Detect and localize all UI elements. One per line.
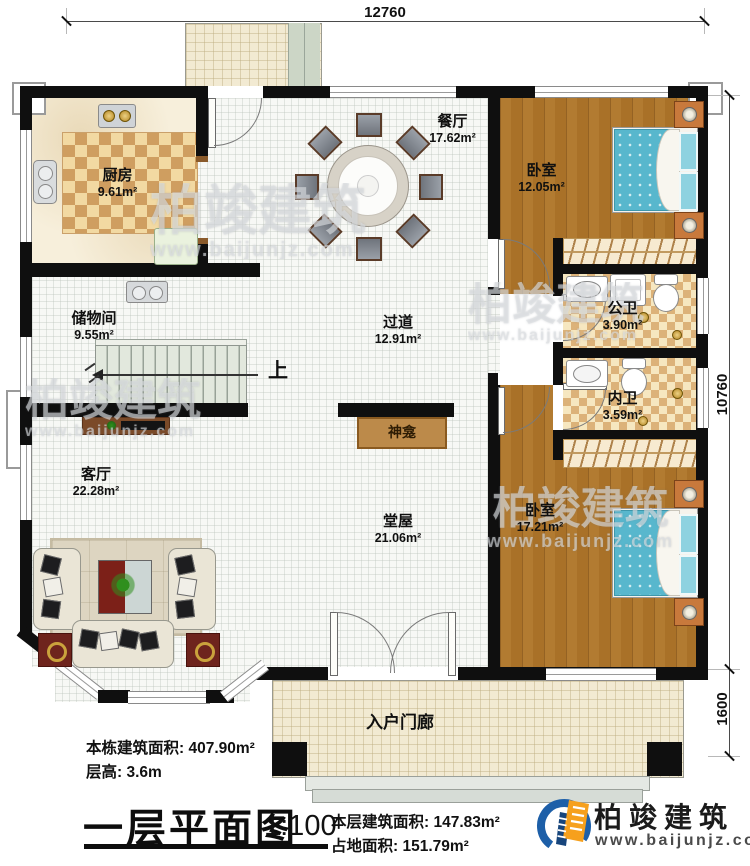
- room-label-storage: 储物间 9.55m²: [48, 310, 140, 343]
- storage-counter-sink: [126, 281, 168, 303]
- sofa-cushion: [99, 631, 119, 651]
- floor-area-note: 本层建筑面积: 147.83m²: [331, 810, 500, 832]
- closet-bottom: [563, 439, 698, 468]
- sofa-cushion: [41, 599, 61, 619]
- kitchen-door-jamb: [196, 156, 208, 162]
- room-area: 9.61m²: [75, 185, 160, 200]
- top-porch-step: [288, 23, 304, 87]
- floor-height-note: 层高: 3.6m: [86, 760, 162, 782]
- dim-ext: [708, 95, 740, 96]
- sofa-cushion: [43, 577, 64, 598]
- brand-name: 柏竣建筑: [594, 796, 734, 836]
- top-porch-step: [304, 23, 320, 87]
- kitchen-wall-bottom: [20, 263, 260, 277]
- sink-bowl: [149, 286, 163, 300]
- stairs-direction-line: [100, 374, 258, 376]
- room-area: 12.05m²: [499, 180, 584, 195]
- living-left-window: [20, 445, 32, 520]
- bed-top-pillow: [679, 132, 698, 171]
- room-area: 3.59m²: [580, 408, 665, 423]
- lamp: [682, 605, 697, 620]
- room-label-living: 客厅 22.28m²: [52, 466, 140, 499]
- room-area: 9.55m²: [48, 328, 140, 343]
- private-bath-right-window: [697, 368, 709, 428]
- dim-line-top: [66, 21, 704, 22]
- nightstand: [674, 598, 704, 626]
- bed-top-pillow: [679, 172, 698, 211]
- bedroom-bottom-door-gap: [498, 373, 553, 385]
- sink-basin: [573, 365, 601, 383]
- dining-top-window: [330, 86, 456, 98]
- watermark-site: www.baijunjz.com: [25, 424, 255, 441]
- top-porch-door-gap: [208, 86, 263, 98]
- coffee-table-plant: [108, 570, 138, 600]
- room-name: 卧室: [499, 162, 584, 180]
- bed-top-blanket: [656, 129, 680, 211]
- burner: [103, 110, 115, 122]
- sofa-cushion: [139, 631, 160, 652]
- room-name: 餐厅: [410, 113, 495, 131]
- lamp: [682, 218, 697, 233]
- shrine-label: 神龛: [388, 424, 416, 440]
- gold-ornament: [47, 642, 67, 662]
- porch-pillar-right: [647, 742, 682, 776]
- sofa-cushion: [177, 577, 198, 598]
- room-area: 17.62m²: [410, 131, 495, 146]
- shower-head: [672, 388, 683, 399]
- watermark-site: www.baijunjz.com: [150, 240, 620, 259]
- gold-ornament: [195, 642, 215, 662]
- room-label-entry-porch: 入户门廊: [330, 713, 470, 733]
- shrine-table: 神龛: [357, 417, 447, 449]
- dim-porch-value: 1600: [714, 673, 731, 745]
- kitchen-sink: [33, 160, 57, 204]
- room-label-main-hall: 堂屋 21.06m²: [354, 513, 442, 546]
- dim-ext: [708, 756, 740, 757]
- room-area: 22.28m²: [52, 484, 140, 499]
- brand-logo-icon: [536, 790, 594, 865]
- dim-right-value: 10760: [714, 347, 731, 442]
- closet-rod: [564, 452, 697, 454]
- room-name: 内卫: [580, 390, 665, 408]
- watermark-site: www.baijunjz.com: [428, 532, 733, 551]
- bay-wall-corner-left: [98, 690, 130, 703]
- room-area: 12.91m²: [354, 332, 442, 347]
- closet-bath-wall: [553, 264, 696, 274]
- room-label-private-bath: 内卫 3.59m²: [580, 390, 665, 423]
- brand-block: 柏竣建筑 www.baijunjz.com: [536, 790, 750, 862]
- bay-window-front: [128, 691, 210, 704]
- room-name: 公卫: [580, 300, 665, 318]
- watermark-text: 柏竣建筑: [25, 378, 201, 425]
- room-area: 3.90m²: [580, 318, 665, 333]
- side-table-left: [38, 633, 72, 667]
- bedroom-bottom-window: [546, 668, 656, 681]
- room-name: 储物间: [48, 310, 140, 328]
- room-name: 卧室: [496, 502, 584, 520]
- brand-logo-svg: [536, 790, 594, 860]
- room-label-dining: 餐厅 17.62m²: [410, 113, 495, 146]
- stove: [98, 104, 136, 128]
- title-underline: [84, 844, 328, 849]
- room-label-hallway: 过道 12.91m²: [354, 314, 442, 347]
- room-label-public-bath: 公卫 3.90m²: [580, 300, 665, 333]
- room-name: 厨房: [75, 167, 160, 185]
- lamp: [682, 107, 697, 122]
- footprint-area-note: 占地面积: 151.79m²: [331, 834, 469, 856]
- floorplan-canvas: 上: [0, 0, 750, 866]
- brand-website: www.baijunjz.com: [595, 832, 750, 850]
- dining-chair: [356, 113, 382, 137]
- stairs-up-label: 上: [262, 359, 294, 383]
- entry-door-leaf-right: [448, 612, 456, 676]
- room-label-bedroom-top: 卧室 12.05m²: [499, 162, 584, 195]
- plan-scale: 1:100: [264, 810, 337, 843]
- sofa-cushion: [174, 554, 195, 575]
- dim-top-value: 12760: [330, 4, 440, 21]
- room-name: 过道: [354, 314, 442, 332]
- kitchen-left-window: [20, 130, 32, 242]
- burner: [119, 110, 131, 122]
- room-area: 21.06m²: [354, 531, 442, 546]
- sink-bowl: [38, 166, 53, 181]
- watermark: 柏竣建筑 www.baijunjz.com: [25, 378, 255, 448]
- nightstand: [674, 101, 704, 128]
- sofa-cushion: [118, 628, 139, 649]
- watermark-text: 柏竣建筑: [150, 183, 366, 241]
- room-label-kitchen: 厨房 9.61m²: [75, 167, 160, 200]
- shrine-wall: [338, 403, 454, 417]
- kitchen-wall-right-upper: [196, 98, 208, 156]
- sink-bowl: [132, 286, 146, 300]
- bedroom-top-window: [535, 86, 668, 98]
- room-name: 堂屋: [354, 513, 442, 531]
- bath-closet-wall: [553, 430, 696, 439]
- building-area-note: 本栋建筑面积: 407.90m²: [86, 736, 255, 758]
- porch-pillar-left: [272, 742, 307, 776]
- sofa-cushion: [175, 599, 195, 619]
- side-table-right: [186, 633, 220, 667]
- sofa-cushion: [79, 629, 100, 650]
- sink-bowl: [38, 184, 53, 199]
- private-bath-door-gap: [553, 385, 563, 431]
- room-area: 17.21m²: [496, 520, 584, 535]
- nightstand: [674, 212, 704, 239]
- room-label-bedroom-bottom: 卧室 17.21m²: [496, 502, 584, 535]
- private-bath-sink: [566, 360, 608, 387]
- room-name: 客厅: [52, 466, 140, 484]
- dim-ext: [708, 669, 740, 670]
